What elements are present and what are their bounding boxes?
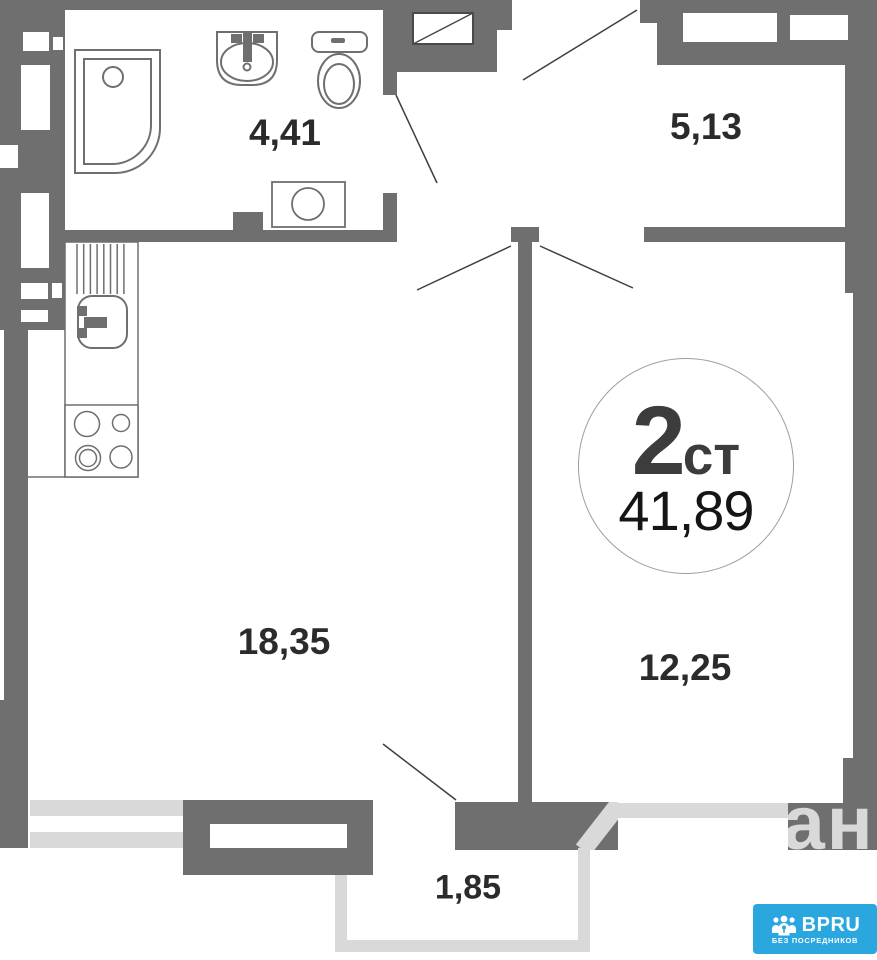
- total-area: 41,89: [618, 483, 753, 539]
- floor-plan: 4,41 5,13 18,35 12,25 1,85 2ст 41,89 циа…: [0, 0, 877, 960]
- living-door-swing: [417, 246, 511, 290]
- balcony-door-swing: [383, 744, 456, 800]
- vent-shaft-icon: [413, 13, 473, 44]
- toilet-icon: [312, 32, 367, 108]
- living-window: [210, 824, 347, 848]
- kitchen-sink-icon: [77, 296, 127, 348]
- washing-machine-icon: [272, 182, 345, 227]
- entry-door-swing: [523, 10, 637, 80]
- hallway-area-label: 5,13: [670, 106, 742, 148]
- bedroom-window-sill: [618, 803, 788, 818]
- bpru-tagline: БЕЗ ПОСРЕДНИКОВ: [772, 937, 858, 945]
- bpru-logo: BPRU БЕЗ ПОСРЕДНИКОВ: [753, 904, 877, 954]
- bathroom-sink-icon: [217, 32, 277, 85]
- apartment-type-badge: 2ст 41,89: [578, 358, 794, 574]
- bathroom-area-label: 4,41: [249, 112, 321, 154]
- hall-window-2: [790, 15, 848, 40]
- type-suffix: ст: [683, 434, 741, 477]
- bathroom-door-swing: [396, 95, 437, 183]
- bpru-people-icon: [770, 914, 798, 936]
- rooms-count: 2: [632, 403, 683, 479]
- apartment-type: 2ст: [632, 403, 740, 479]
- bedroom-area-label: 12,25: [639, 647, 732, 689]
- balcony-outline: [30, 800, 788, 952]
- bedroom-door-swing: [540, 246, 633, 288]
- stove-icon: [65, 405, 138, 477]
- living-kitchen-area-label: 18,35: [238, 621, 331, 663]
- bathtub-icon: [75, 50, 160, 173]
- bpru-brand-text: BPRU: [802, 915, 861, 935]
- balcony-area-label: 1,85: [435, 869, 501, 908]
- hall-window-1: [683, 13, 777, 42]
